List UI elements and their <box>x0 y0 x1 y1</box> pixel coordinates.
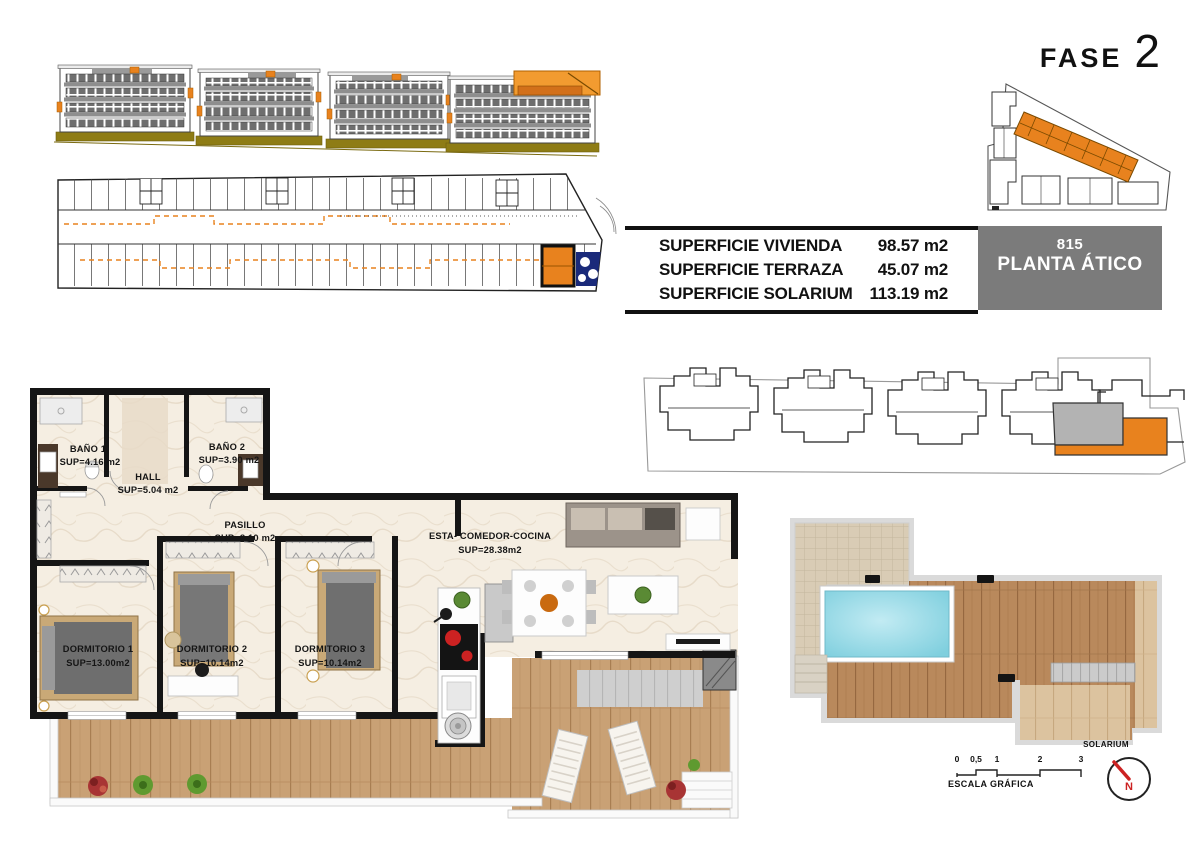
building-elevations-drawing <box>52 46 608 162</box>
room-sup-dorm1: SUP=13.00m2 <box>66 658 129 668</box>
room-label-dorm2: DORMITORIO 2 <box>177 644 247 654</box>
compass-north-letter: N <box>1125 781 1133 793</box>
room-label-dorm3: DORMITORIO 3 <box>295 644 365 654</box>
scale-tick: 0 <box>955 754 960 764</box>
apartment-floor-plan: BAÑO 1 SUP=4.16 m2 HALL SUP=5.04 m2 BAÑO… <box>30 388 742 835</box>
room-sup-salon: SUP=28.38m2 <box>458 545 521 555</box>
kitchen-counter <box>434 588 480 743</box>
coffee-table <box>608 576 678 614</box>
bed-dormitorio-2 <box>165 572 238 696</box>
terrace-concrete-strip <box>577 670 703 707</box>
elevation-building-1 <box>56 65 194 141</box>
phase-title: FASE 2 <box>985 28 1160 74</box>
surface-row-vivienda: SUPERFICIE VIVIENDA 98.57 m2 <box>625 234 978 258</box>
surface-label: SUPERFICIE SOLARIUM <box>659 282 853 306</box>
cooktop <box>440 624 478 670</box>
building-keyplan-strip <box>40 166 620 304</box>
unit-floor-label: PLANTA ÁTICO <box>978 254 1162 276</box>
north-compass-icon: N <box>1102 752 1156 806</box>
sofa <box>566 503 720 547</box>
elevation-building-3 <box>326 72 452 148</box>
room-sup-bano2: SUP=3.90 m2 <box>199 455 260 465</box>
surface-row-solarium: SUPERFICIE SOLARIUM 113.19 m2 <box>625 282 978 306</box>
scale-tick-labels: 0 0,5 1 2 3 <box>948 754 1098 765</box>
room-label-dorm1: DORMITORIO 1 <box>63 644 133 654</box>
room-sup-dorm2: SUP=10.14m2 <box>180 658 243 668</box>
solarium-plan <box>783 505 1198 750</box>
phase-label: FASE <box>1040 43 1123 74</box>
room-sup-hall: SUP=5.04 m2 <box>118 485 179 495</box>
roof-highlight-apartment <box>1053 403 1123 445</box>
elevation-building-2 <box>196 69 322 145</box>
room-label-hall: HALL <box>135 472 161 482</box>
solarium-access-stair <box>682 772 732 808</box>
unit-identifier-box: 815 PLANTA ÁTICO <box>978 226 1162 310</box>
surface-row-terraza: SUPERFICIE TERRAZA 45.07 m2 <box>625 258 978 282</box>
surface-value: 45.07 m2 <box>878 258 948 282</box>
surface-value: 113.19 m2 <box>869 282 948 306</box>
solarium-pool <box>820 586 954 662</box>
scale-tick: 3 <box>1079 754 1084 764</box>
room-sup-pasillo: SUP=8.10 m2 <box>215 533 276 543</box>
scale-bar-caption: ESCALA GRÁFICA <box>948 779 1098 789</box>
room-sup-dorm3: SUP=10.14m2 <box>298 658 361 668</box>
solarium-stairs <box>1051 663 1135 682</box>
dining-table <box>502 570 596 636</box>
room-label-bano2: BAÑO 2 <box>209 442 245 452</box>
elevation-building-4-highlighted <box>446 71 600 152</box>
surface-label: SUPERFICIE VIVIENDA <box>659 234 842 258</box>
room-label-salon: ESTA- COMEDOR-COCINA <box>429 531 551 541</box>
room-label-pasillo: PASILLO <box>225 520 266 530</box>
floor-plan-sheet: FASE 2 <box>0 0 1200 859</box>
scale-bar: 0 0,5 1 2 3 ESCALA GRÁFICA <box>948 754 1098 798</box>
room-sup-bano1: SUP=4.16 m2 <box>60 457 121 467</box>
unit-number: 815 <box>978 236 1162 253</box>
phase-number: 2 <box>1134 28 1160 74</box>
tv-bench <box>666 634 730 650</box>
room-label-bano1: BAÑO 1 <box>70 444 106 454</box>
scale-tick: 0,5 <box>970 754 982 764</box>
scale-tick: 1 <box>995 754 1000 764</box>
solarium-left-steps <box>795 655 827 693</box>
scale-tick: 2 <box>1038 754 1043 764</box>
surface-table: SUPERFICIE VIVIENDA 98.57 m2 SUPERFICIE … <box>625 226 978 314</box>
surface-label: SUPERFICIE TERRAZA <box>659 258 843 282</box>
solarium-plan-label: SOLARIUM <box>1066 740 1146 749</box>
surface-value: 98.57 m2 <box>878 234 948 258</box>
site-location-plan <box>980 76 1180 218</box>
scale-bar-graphic <box>948 765 1098 779</box>
